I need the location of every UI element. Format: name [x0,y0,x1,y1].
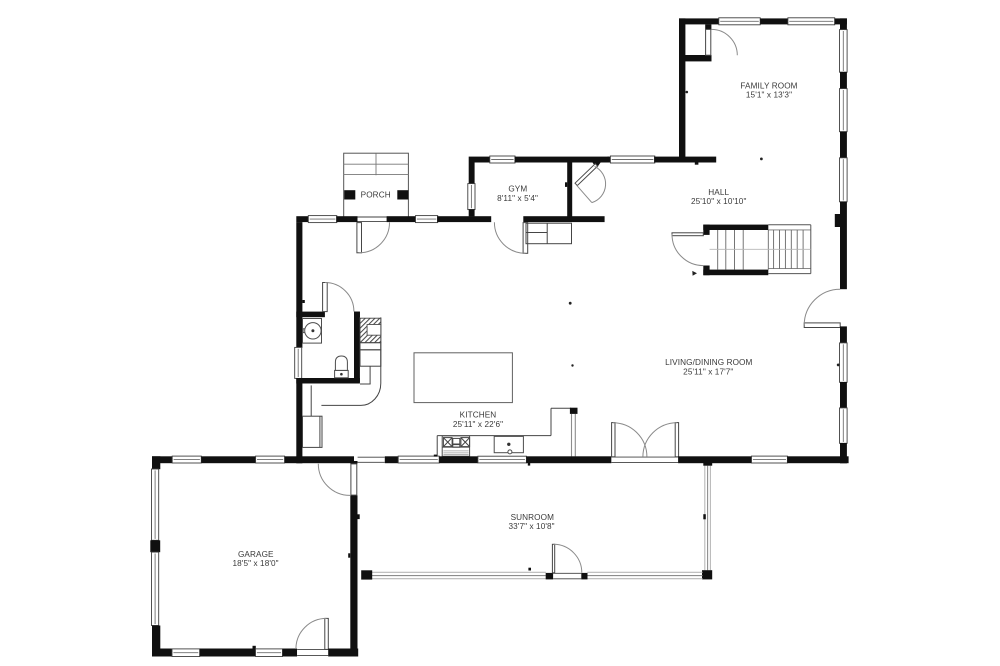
svg-text:25'10" x 10'10": 25'10" x 10'10" [691,197,747,206]
svg-text:LIVING/DINING ROOM: LIVING/DINING ROOM [665,358,752,367]
svg-text:HALL: HALL [708,188,729,197]
svg-text:KITCHEN: KITCHEN [460,411,497,420]
svg-text:33'7" x 10'8": 33'7" x 10'8" [508,522,554,531]
svg-text:GARAGE: GARAGE [238,550,274,559]
svg-text:PORCH: PORCH [361,191,391,200]
svg-text:FAMILY ROOM: FAMILY ROOM [740,82,797,91]
svg-text:25'11" x 17'7": 25'11" x 17'7" [683,367,733,376]
svg-text:15'1" x 13'3": 15'1" x 13'3" [746,91,792,100]
svg-text:SUNROOM: SUNROOM [511,513,555,522]
svg-text:GYM: GYM [508,184,527,193]
svg-text:18'5" x 18'0": 18'5" x 18'0" [232,559,278,568]
svg-text:25'11" x 22'6": 25'11" x 22'6" [453,420,503,429]
svg-text:8'11" x 5'4": 8'11" x 5'4" [497,194,538,203]
